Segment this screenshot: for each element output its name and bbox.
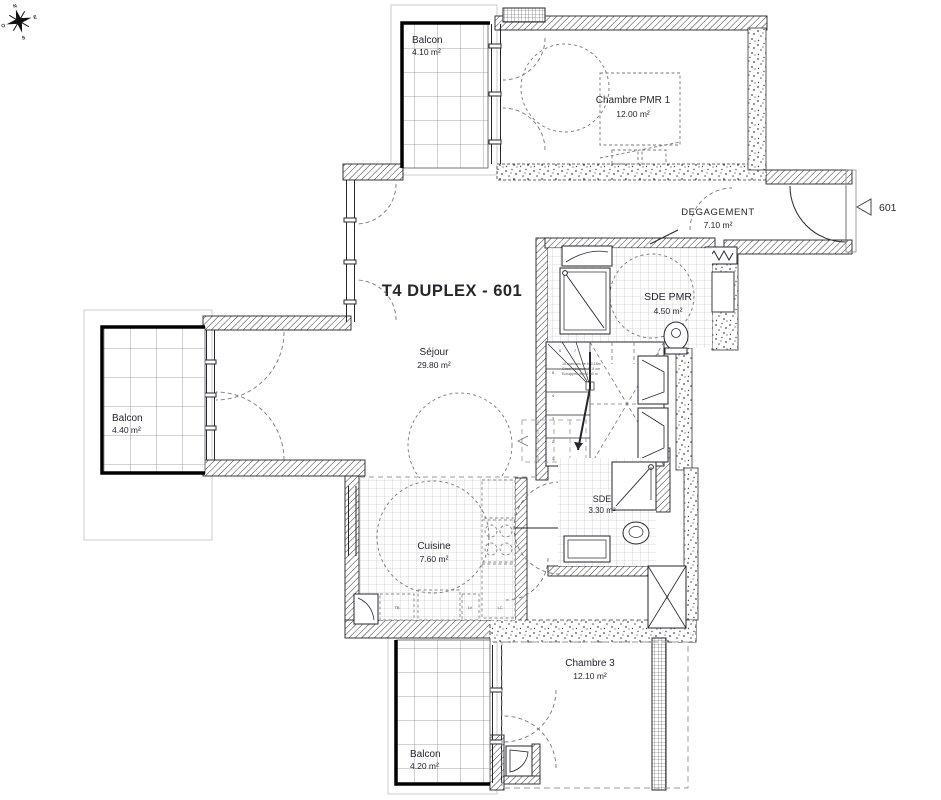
balcon-bottom-name: Balcon <box>410 749 441 760</box>
stair-closets <box>638 356 668 462</box>
balcony-bottom: Balcon 4.20 m² <box>396 640 490 784</box>
french-door-west-swing <box>356 184 396 320</box>
compass-east-label: E <box>33 14 38 21</box>
compass-west-label: O <box>1 23 6 30</box>
balcony-door-swing <box>503 38 545 150</box>
wall-degagement-south <box>724 240 852 254</box>
wall-closet-bottom <box>504 776 540 784</box>
wall-wing-top <box>203 316 351 330</box>
entrance-tag-number: 601 <box>879 202 897 214</box>
toilet-pmr <box>664 322 688 354</box>
bottom-closet <box>506 746 532 776</box>
entry-door <box>790 186 846 242</box>
balcony-top: Balcon 4.10 m² <box>402 23 490 168</box>
wall-entry-top <box>766 170 852 184</box>
balcon-left-area: 4.40 m² <box>112 425 141 435</box>
svg-text:16 marches de h: 0,18m: 16 marches de h: 0,18m <box>562 362 601 366</box>
sde-pmr-area: 4.50 m² <box>654 306 683 316</box>
balcony-left: Balcon 4.40 m² <box>102 327 205 473</box>
balcon-bottom-area: 4.20 m² <box>410 761 439 771</box>
wall-cuisine-east <box>515 478 527 622</box>
window-pmr1-west <box>489 24 501 164</box>
entrance-tag: 601 <box>857 199 897 215</box>
kitchen-corner-closet <box>354 594 378 624</box>
chambre-pmr1-area: 12.00 m² <box>616 109 650 119</box>
compass-rose: N S E O <box>0 0 43 46</box>
wall-closet-right <box>532 744 540 780</box>
window-sejour-west <box>344 180 356 322</box>
floor-plan-canvas: N S E O <box>0 0 941 800</box>
wall-wing-bottom <box>203 460 365 476</box>
wall-pmr1-south <box>497 164 766 180</box>
compass-south-label: S <box>21 35 26 42</box>
room-sde-pmr: SDE PMR 4.50 m² <box>548 230 734 354</box>
shower-sde <box>612 462 656 510</box>
sde-area: 3.30 m² <box>588 506 615 515</box>
room-chambre-pmr1: Chambre PMR 1 12.00 m² <box>503 38 732 230</box>
room-sejour: T4 DUPLEX - 601 Séjour 29.80 m² <box>216 184 536 497</box>
svg-text:Echappée mini 1,90 m: Echappée mini 1,90 m <box>562 372 598 376</box>
cuisine-area: 7.60 m² <box>420 554 449 564</box>
kitchen-label-lc: LC <box>497 605 502 610</box>
compass-north-label: N <box>13 3 18 10</box>
balcon-left-name: Balcon <box>112 413 143 424</box>
balcon-top-name: Balcon <box>412 35 443 46</box>
pmr-turning-circle <box>521 44 609 132</box>
vanity-sde <box>564 536 610 562</box>
window-sill-top <box>503 8 545 22</box>
plan-title: T4 DUPLEX - 601 <box>382 282 522 300</box>
degagement-name: DEGAGEMENT <box>681 207 755 218</box>
sejour-name: Séjour <box>420 347 450 358</box>
svg-text:Giron minimum 17,8 cm: Giron minimum 17,8 cm <box>562 367 600 371</box>
chambre3-area: 12.10 m² <box>573 671 607 681</box>
kitchen-label-lv: LV <box>468 605 473 610</box>
kitchen-label-tb: TB <box>394 605 399 610</box>
sde-name: SDE <box>593 494 612 504</box>
closet-pl: PL <box>648 566 686 628</box>
wall-sejour-top <box>343 164 403 180</box>
chambre-pmr1-name: Chambre PMR 1 <box>596 95 671 106</box>
entrance-arrow-icon <box>857 199 871 215</box>
degagement-area: 7.10 m² <box>704 220 733 230</box>
window-wing-west <box>204 330 216 460</box>
washbasin-pmr <box>562 246 612 266</box>
floor-plan-drawing: N S E O <box>0 0 941 800</box>
room-cuisine: Cuisine 7.60 m² TB LV LC <box>354 478 515 624</box>
washbasin-sde <box>623 522 649 544</box>
window-band-chambre3-east <box>652 638 666 790</box>
wall-east-upper <box>676 348 692 470</box>
chambre3-name: Chambre 3 <box>565 658 615 669</box>
stair-annotation: 16 marches de h: 0,18m Giron minimum 17,… <box>562 362 601 376</box>
closet-pl-label: PL <box>665 594 670 600</box>
sejour-area: 29.80 m² <box>417 360 451 370</box>
room-sde: SDE 3.30 m² <box>558 458 656 566</box>
sde-pmr-name: SDE PMR <box>644 291 692 303</box>
balcon-top-area: 4.10 m² <box>412 47 441 57</box>
shower-pmr <box>560 268 610 334</box>
cabinet <box>712 272 734 312</box>
wall-pmr1-east <box>748 28 766 170</box>
cuisine-name: Cuisine <box>417 541 451 552</box>
french-door-wing-swing <box>216 332 284 460</box>
